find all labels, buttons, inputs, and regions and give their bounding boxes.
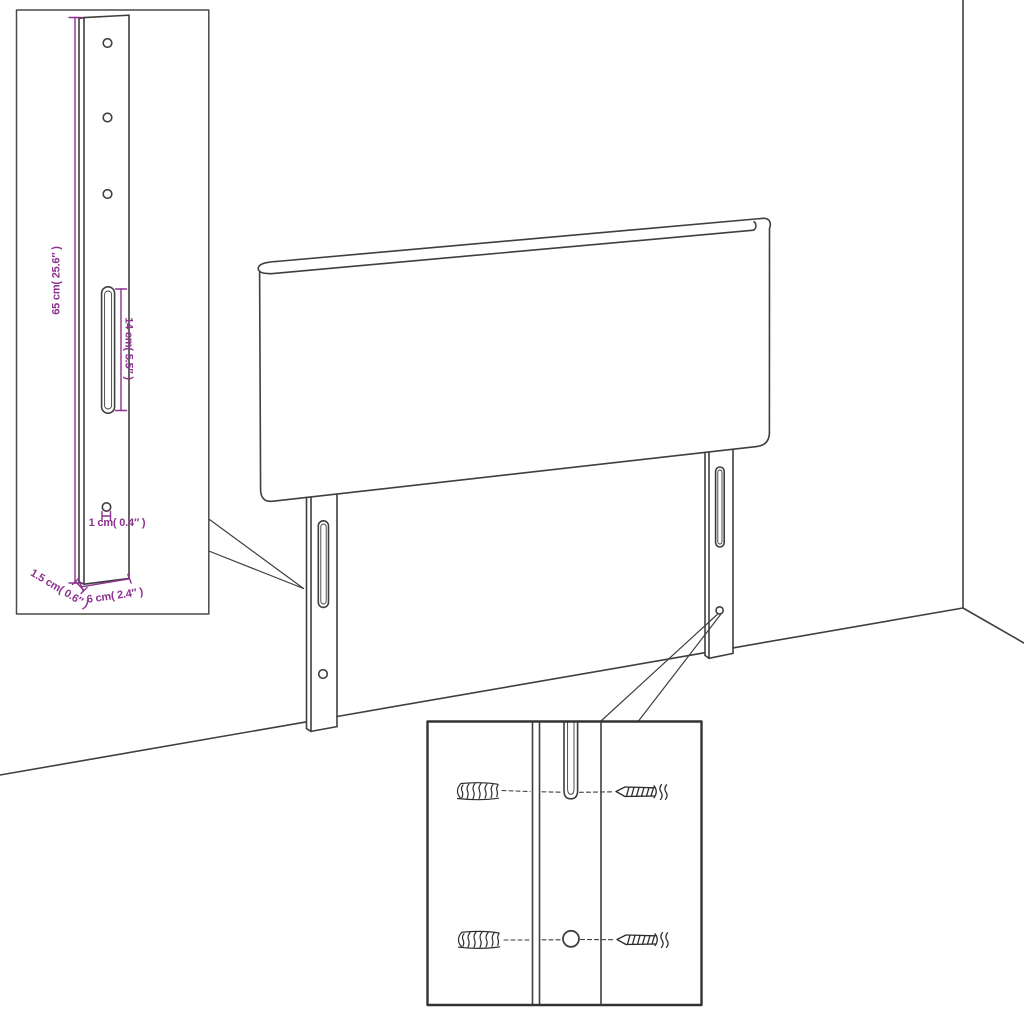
closeup-hole	[563, 931, 579, 947]
right-leg-slot	[716, 467, 725, 547]
floor-line	[0, 608, 1024, 775]
dim-slot-label: 14 cm( 5.5″ )	[122, 294, 135, 404]
bracket-hole-2	[103, 113, 112, 122]
dim-height-label: 65 cm( 25.6″ )	[51, 226, 64, 336]
mounting-detail-inset	[428, 722, 702, 1006]
bracket-callout-lines	[209, 519, 304, 589]
closeup-slot	[564, 723, 578, 799]
leg-closeup-strip	[533, 723, 602, 1005]
wall-plug-bottom	[459, 931, 500, 948]
left-leg-slot	[318, 521, 328, 608]
bracket-hole-1	[103, 39, 112, 48]
screw-bottom	[617, 933, 668, 948]
bracket-bottom-hole	[102, 503, 110, 511]
dim-hole-label: 1 cm( 0.4″ )	[62, 517, 172, 530]
left-leg	[307, 494, 338, 731]
leader-dashes	[502, 791, 614, 941]
screw-top	[616, 785, 667, 800]
bracket-hole-3	[103, 190, 112, 199]
wall-plug-top	[458, 783, 499, 800]
diagram-line-art	[0, 0, 1024, 1024]
product-diagram: 65 cm( 25.6″ ) 14 cm( 5.5″ ) 1 cm( 0.4″ …	[0, 0, 1024, 1024]
right-leg-hole	[716, 607, 723, 614]
right-leg	[705, 449, 733, 658]
bracket-slot	[102, 287, 115, 413]
headboard-panel	[258, 218, 770, 501]
left-leg-hole	[319, 670, 328, 679]
